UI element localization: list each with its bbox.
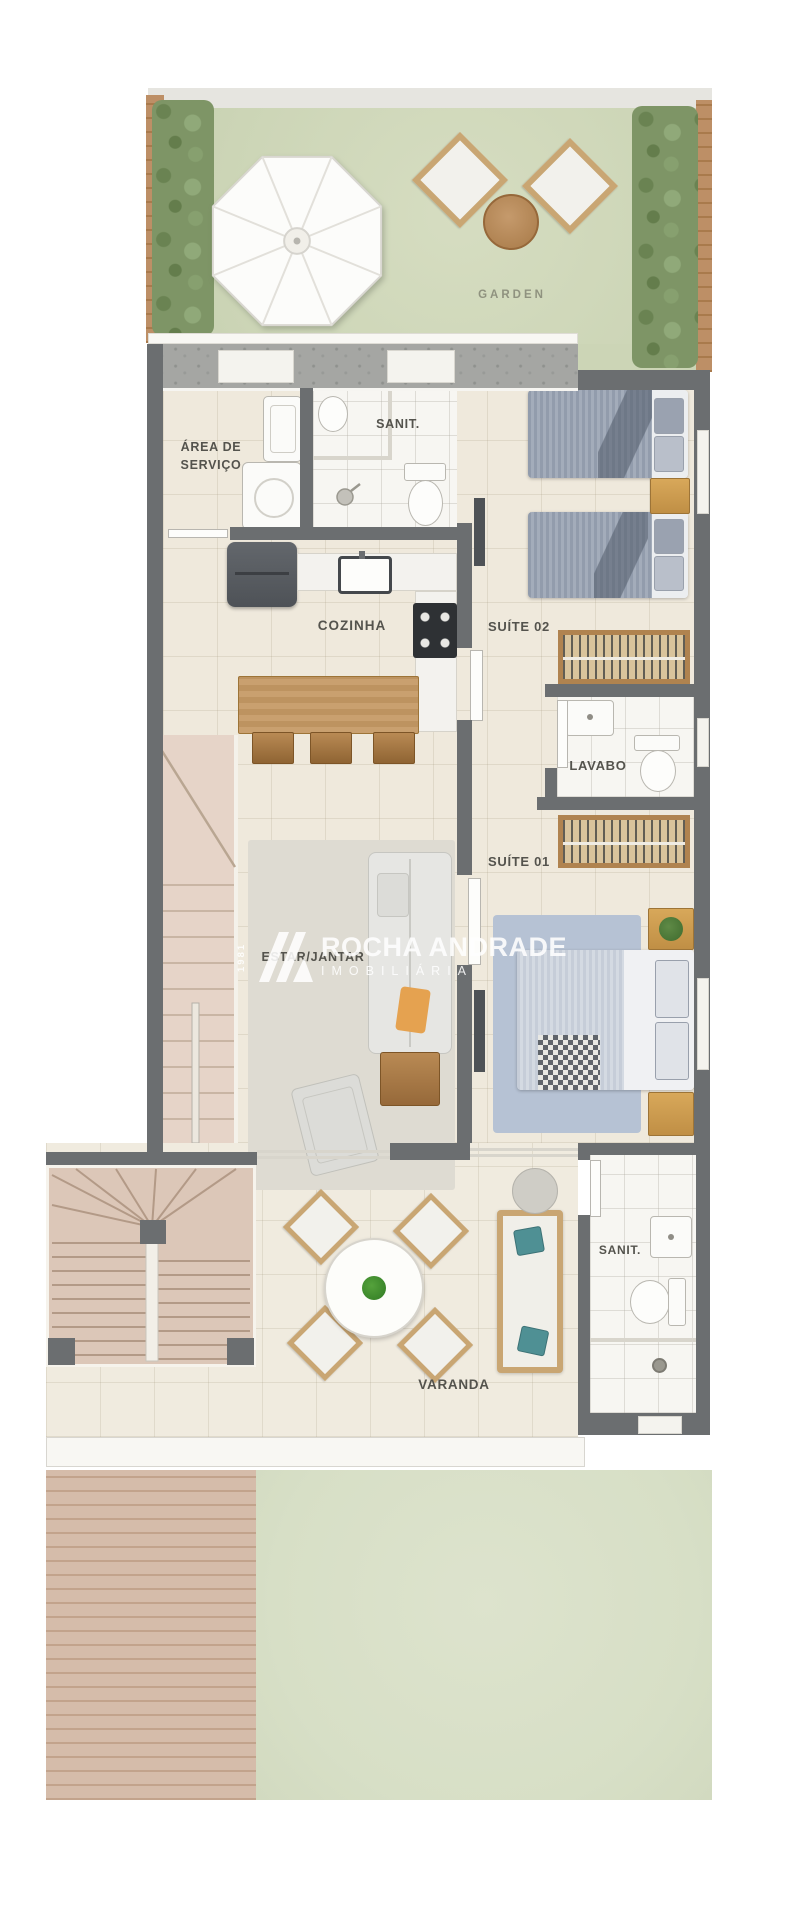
suite02-bed-1	[528, 390, 688, 478]
varanda-label: VARANDA	[404, 1377, 504, 1392]
sanit-upper-toilet-bowl	[408, 480, 443, 526]
refrigerator	[227, 542, 297, 607]
suite01-wardrobe-rail	[563, 842, 685, 845]
varanda-side-table	[512, 1168, 558, 1214]
sanit-varanda-label: SANIT.	[592, 1243, 648, 1257]
varanda-parapet	[46, 1437, 585, 1467]
watermark-subtitle: IMOBILIÁRIA	[321, 963, 567, 980]
suite01-bed-checkered-throw	[538, 1035, 600, 1090]
house-top-wall-inner-line	[148, 388, 578, 391]
living-sofa-cushion	[377, 873, 409, 917]
living-sliding-door-rail-1	[257, 1150, 390, 1153]
suite02-nightstand	[650, 478, 690, 514]
varanda-bench-pillow-1	[513, 1226, 545, 1256]
suite01-bed-pillow-2	[655, 1022, 689, 1080]
hall-suite01-wall	[457, 720, 472, 875]
servico-door	[168, 529, 228, 538]
plant-icon	[659, 917, 683, 941]
washing-machine-drum	[254, 478, 294, 518]
living-sliding-door-rail-2	[257, 1156, 390, 1159]
sanit-varanda-left-wall-stub	[578, 1143, 590, 1160]
suite02-bed-2	[528, 512, 688, 598]
living-orange-pillow	[395, 986, 431, 1034]
servico-sanit-divider-wall	[300, 388, 313, 530]
varanda-table-plant	[362, 1276, 386, 1300]
sanit-varanda-top-wall	[578, 1143, 710, 1155]
area-servico-label-line1: ÁREA DE	[163, 438, 259, 456]
refrigerator-handle	[235, 572, 289, 575]
island-stool-3	[373, 732, 415, 764]
outer-wall-left	[147, 344, 163, 1165]
suite02-label: SUÍTE 02	[478, 619, 560, 634]
lavabo-toilet-tank	[634, 735, 680, 751]
suite02-bed2-pillow	[654, 519, 684, 554]
suite01-wardrobe	[558, 815, 690, 868]
varanda-boundary-wall-left	[46, 1152, 257, 1165]
floor-plan-canvas: GARDEN	[0, 0, 803, 1920]
lavabo-toilet-bowl	[640, 750, 676, 792]
watermark-logo-icon	[255, 932, 313, 982]
watermark-brand: ROCHA ANDRADE	[321, 934, 567, 961]
suite02-top-wall	[578, 370, 710, 390]
suite01-window	[697, 978, 709, 1070]
sanit-upper-sink	[318, 396, 348, 432]
shower-head-icon	[334, 482, 362, 510]
sanit-upper-label: SANIT.	[366, 417, 430, 431]
suite01-label: SUÍTE 01	[478, 854, 560, 869]
laundry-tank	[263, 396, 302, 462]
stove-cooktop	[413, 603, 457, 658]
varanda-round-table	[324, 1238, 424, 1338]
suite02-bed1-pillow-2	[654, 436, 684, 472]
suite02-wardrobe	[558, 630, 690, 684]
hedge-right	[632, 106, 698, 368]
suite02-bed2-pillow-2	[654, 556, 684, 591]
sanit-varanda-left-wall	[578, 1215, 590, 1435]
kitchen-faucet	[359, 551, 365, 559]
house-top-wall	[148, 344, 578, 388]
suite02-bed1-pillow	[654, 398, 684, 434]
island-stool-2	[310, 732, 352, 764]
suite02-window	[697, 430, 709, 514]
mulch-border-right	[696, 100, 712, 372]
suite01-nightstand-bottom	[648, 1092, 694, 1136]
garden-label: GARDEN	[452, 289, 572, 301]
area-servico-label-line2: SERVIÇO	[163, 456, 259, 474]
lavabo-sink	[565, 700, 614, 736]
sanit-varanda-bottom-window	[638, 1416, 682, 1434]
kitchen-island	[238, 676, 419, 734]
lavabo-window	[697, 718, 709, 767]
area-servico-label: ÁREA DE SERVIÇO	[163, 438, 259, 474]
lavabo-faucet-dot	[587, 714, 593, 720]
sanit-upper-toilet-tank	[404, 463, 446, 481]
island-stool-1	[252, 732, 294, 764]
garden-umbrella	[202, 146, 392, 336]
watermark-year: 1981	[236, 931, 247, 983]
sanit-varanda-sink	[650, 1216, 692, 1258]
kitchen-top-wall	[230, 527, 460, 540]
kitchen-sink	[338, 556, 392, 594]
varanda-bench-pillow-2	[517, 1325, 550, 1356]
varanda-boundary-wall-mid	[390, 1143, 470, 1160]
laundry-tank-basin	[270, 405, 296, 453]
suite02-bed2-fold	[594, 512, 648, 598]
sanit-varanda-toilet-tank	[668, 1278, 686, 1326]
suite02-wardrobe-rail	[563, 657, 685, 660]
living-suite01-wall	[457, 965, 472, 1143]
sanit-varanda-shower-glass	[590, 1338, 696, 1342]
suite01-top-wall	[537, 797, 694, 810]
suite01-bed-pillow	[655, 960, 689, 1018]
sanit-varanda-faucet-dot	[668, 1234, 674, 1240]
suite01-tv-panel	[474, 990, 485, 1072]
sanit-varanda-door	[590, 1160, 601, 1217]
lavabo-top-wall	[545, 684, 694, 697]
exterior-staircase	[46, 1165, 256, 1367]
cozinha-label: COZINHA	[306, 618, 398, 633]
backyard-deck	[46, 1470, 256, 1800]
shower-drain-icon	[652, 1358, 667, 1373]
house-top-outline	[148, 333, 578, 344]
kitchen-suites-wall-upper	[457, 523, 472, 648]
suite02-bed1-fold	[598, 390, 652, 478]
garden-round-table	[483, 194, 539, 250]
suite01-nightstand-top	[648, 908, 694, 950]
watermark: 1981 ROCHA ANDRADE IMOBILIÁRIA	[236, 926, 567, 988]
backyard-grass	[256, 1470, 712, 1800]
interior-staircase	[154, 735, 238, 1143]
top-wall-window-servico	[218, 350, 294, 383]
top-wall-window-sanit	[387, 350, 455, 383]
suite01-sliding-door-rail-2	[470, 1154, 578, 1157]
suite01-sliding-door-rail-1	[470, 1148, 578, 1151]
sanit-varanda-right-wall	[696, 1143, 710, 1435]
watermark-text-block: ROCHA ANDRADE IMOBILIÁRIA	[321, 934, 567, 980]
varanda-bench	[497, 1210, 563, 1373]
suite02-tv-panel	[474, 498, 485, 566]
suite02-door	[470, 650, 483, 721]
lavabo-label: LAVABO	[560, 758, 636, 773]
living-coffee-table	[380, 1052, 440, 1106]
sanit-upper-shower-glass-h	[313, 456, 392, 460]
sanit-varanda-toilet-bowl	[630, 1280, 670, 1324]
